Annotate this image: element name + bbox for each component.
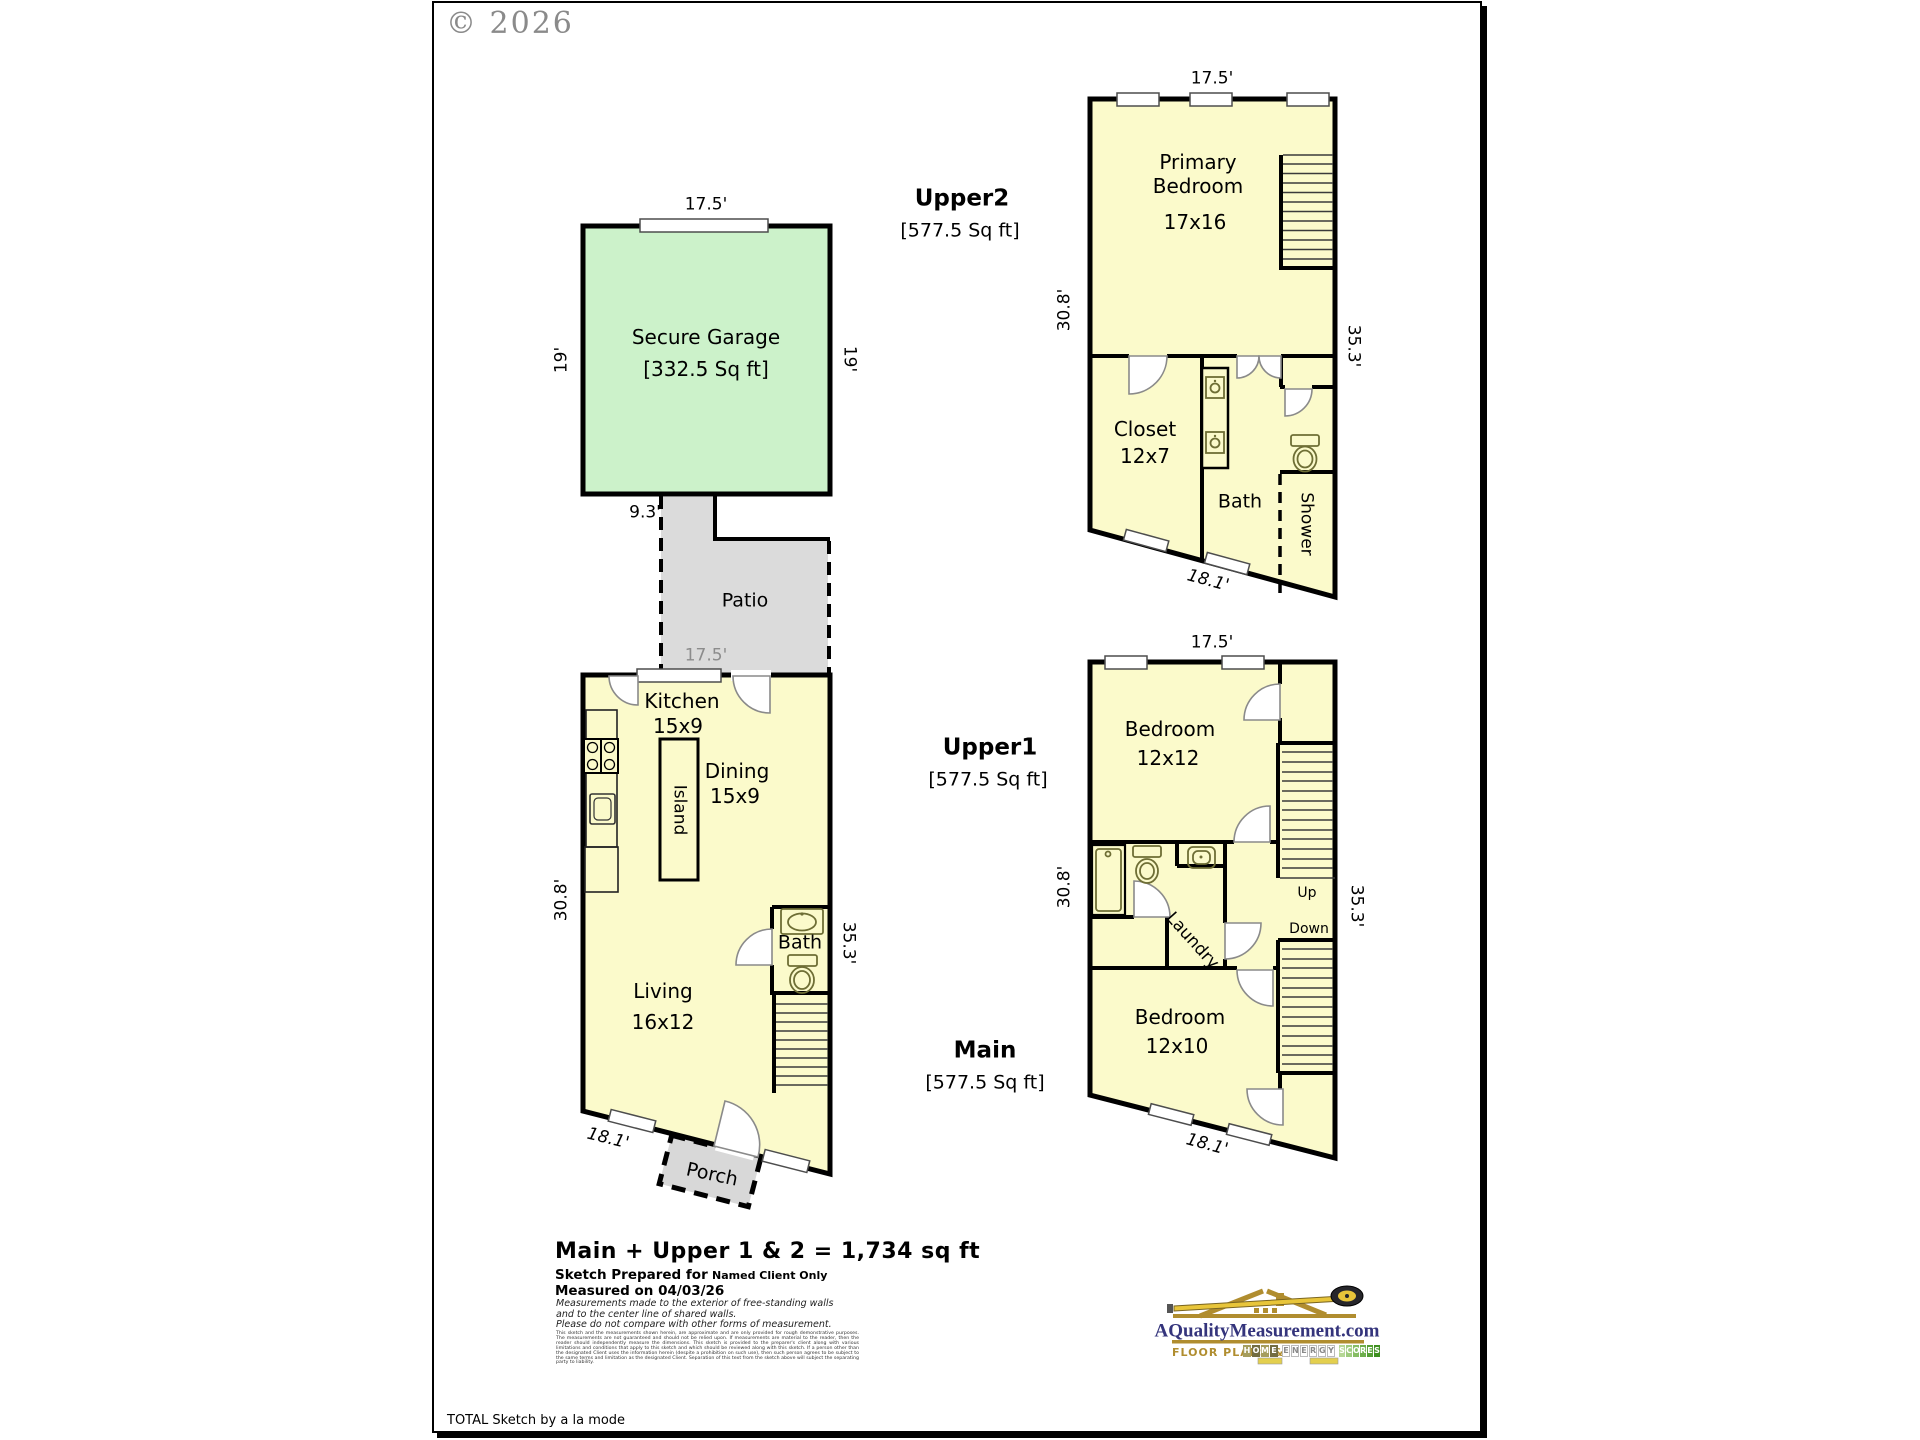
logo-letter: N: [1291, 1345, 1299, 1357]
logo-letter: S: [1339, 1345, 1345, 1357]
upper2-width-dim: 17.5': [1191, 71, 1234, 88]
logo-letter: H: [1243, 1345, 1251, 1357]
closet-size-label: 12x7: [1120, 446, 1170, 466]
prepared-for-label: Sketch Prepared for: [555, 1267, 708, 1283]
logo-letter: R: [1360, 1345, 1366, 1357]
logo-letter: M: [1261, 1345, 1269, 1357]
dining-size-label: 15x9: [710, 786, 760, 806]
logo-letter: E: [1300, 1345, 1308, 1357]
upper1-bedroom1-label: Bedroom: [1125, 719, 1215, 739]
logo-word-scores: S C O R E S: [1339, 1345, 1380, 1357]
dining-label: Dining: [705, 761, 770, 781]
primary-bedroom-size: 17x16: [1164, 212, 1227, 232]
garage-sqft-label: [332.5 Sq ft]: [643, 359, 769, 379]
logo-letter: S: [1374, 1345, 1380, 1357]
primary-bedroom-label-1: Primary: [1159, 152, 1236, 172]
floorplan-drawing: [0, 0, 1920, 1440]
measured-date: Measured on 04/03/26: [555, 1283, 724, 1299]
living-label: Living: [633, 981, 692, 1001]
kitchen-size-label: 15x9: [653, 716, 703, 736]
logo-letter: E: [1270, 1345, 1278, 1357]
logo-letter: E: [1282, 1345, 1290, 1357]
living-size-label: 16x12: [632, 1012, 695, 1032]
garage-room-label: Secure Garage: [632, 327, 780, 347]
upper1-floor-title: Upper1: [943, 737, 1038, 760]
logo-letter: O: [1252, 1345, 1260, 1357]
garage-window: [640, 219, 768, 232]
logo-letter: O: [1353, 1345, 1359, 1357]
prepared-for-value: Named Client Only: [712, 1269, 827, 1282]
logo-url: AQualityMeasurement.com: [1155, 1322, 1380, 1341]
total-sqft-summary: Main + Upper 1 & 2 = 1,734 sq ft: [555, 1239, 980, 1264]
logo-letter: G: [1318, 1345, 1326, 1357]
island-label: Island: [671, 785, 688, 836]
logo-letter: Y: [1327, 1345, 1335, 1357]
garage-right-dim: 19': [841, 346, 858, 372]
measurement-notes: Measurements made to the exterior of fre…: [556, 1299, 833, 1331]
kitchen-label: Kitchen: [644, 691, 719, 711]
main-left-dim: 30.8': [554, 879, 571, 922]
upper2-right-dim: 35.3': [1345, 325, 1362, 368]
upper1-bedroom2-label: Bedroom: [1135, 1007, 1225, 1027]
upper1-left-dim: 30.8': [1057, 866, 1074, 909]
upper1-bedroom2-size: 12x10: [1146, 1036, 1209, 1056]
logo-home-energy-scores: H O M E E N E R G Y S C O R E S: [1243, 1345, 1380, 1357]
floorplan-sketch-page: { "copyright": "© 2026", "garage": { "na…: [0, 0, 1920, 1440]
patio-label: Patio: [722, 592, 769, 611]
logo-badge: [1310, 1358, 1338, 1364]
garage-left-dim: 19': [554, 347, 571, 373]
logo-word-energy: E N E R G Y: [1282, 1345, 1335, 1357]
upper1-right-dim: 35.3': [1348, 885, 1365, 928]
main-bath-label: Bath: [778, 934, 822, 953]
garage-offset-dim: 9.3': [629, 505, 661, 522]
logo-letter: R: [1309, 1345, 1317, 1357]
upper2-bath-label: Bath: [1218, 493, 1262, 512]
logo-word-home: H O M E: [1243, 1345, 1278, 1357]
logo-letter: C: [1346, 1345, 1352, 1357]
upper2-floor-title: Upper2: [915, 188, 1010, 211]
logo-letter: E: [1367, 1345, 1373, 1357]
upper1-width-dim: 17.5': [1191, 635, 1234, 652]
main-floor-title: Main: [954, 1040, 1017, 1063]
vanity-double-sink: [1202, 368, 1228, 468]
closet-label: Closet: [1114, 419, 1176, 439]
upper2-left-dim: 30.8': [1057, 289, 1074, 332]
main-top-window: [637, 669, 721, 682]
copyright-watermark: © 2026: [446, 6, 574, 41]
garage-width-dim: 17.5': [685, 197, 728, 214]
upper1-bedroom1-size: 12x12: [1137, 748, 1200, 768]
total-sketch-brand: TOTAL Sketch by a la mode: [447, 1413, 625, 1428]
main-floor-plan: [583, 669, 830, 1174]
stove-icon: [584, 739, 618, 773]
legal-disclaimer: This sketch and the measurements shown h…: [556, 1332, 859, 1366]
stairs-down-label: Down: [1289, 922, 1329, 936]
primary-bedroom-label-2: Bedroom: [1153, 176, 1243, 196]
main-right-dim: 35.3': [840, 922, 857, 965]
note-line-1: Measurements made to the exterior of fre…: [556, 1299, 833, 1310]
note-line-3: Please do not compare with other forms o…: [556, 1320, 833, 1331]
shower-label: Shower: [1298, 492, 1315, 555]
upper1-floor-sqft: [577.5 Sq ft]: [928, 771, 1047, 790]
main-floor-sqft: [577.5 Sq ft]: [925, 1074, 1044, 1093]
stairs-up-label: Up: [1297, 886, 1316, 900]
upper2-floor-sqft: [577.5 Sq ft]: [900, 222, 1019, 241]
patio-width-dim: 17.5': [685, 648, 728, 665]
